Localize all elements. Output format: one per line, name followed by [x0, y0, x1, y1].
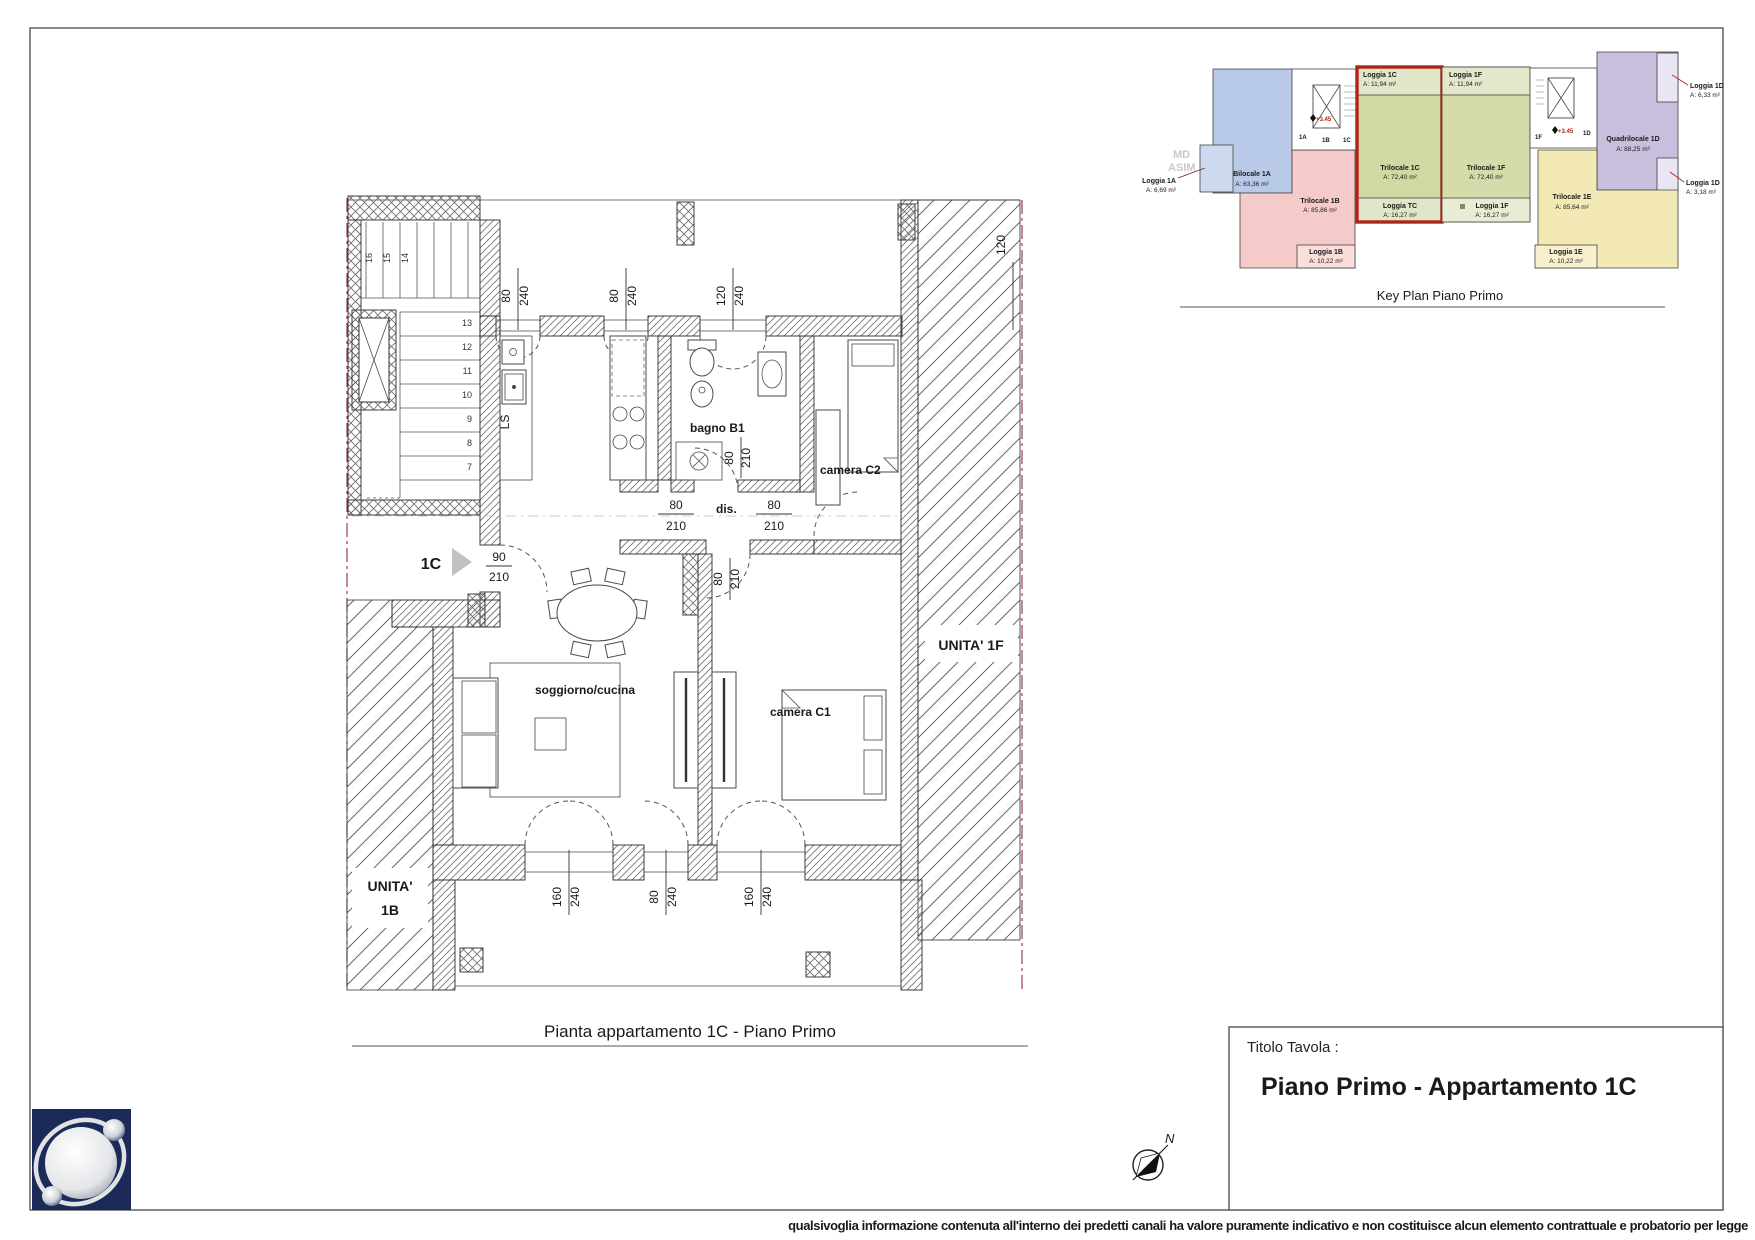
- svg-text:A: 85,86 m²: A: 85,86 m²: [1303, 207, 1337, 214]
- camera-c2: camera C2: [816, 340, 898, 505]
- dim-top-2: 80 240: [607, 268, 639, 330]
- unit-1b-zone: [347, 600, 433, 990]
- room-label-camera-c1: camera C1: [770, 705, 831, 719]
- dim-bottom-2: 80 240: [647, 850, 679, 915]
- loggia-1f-bot-area: A: 16,27 m²: [1475, 212, 1509, 219]
- core-label-1f: 1F: [1535, 135, 1542, 141]
- core-label-1a: 1A: [1299, 135, 1307, 141]
- company-logo: [19, 1103, 140, 1221]
- dim-bottom-1: 160 240: [550, 850, 582, 915]
- svg-text:A: 88,25 m²: A: 88,25 m²: [1616, 146, 1650, 153]
- room-label-camera-c2: camera C2: [820, 463, 881, 477]
- loggia-1f-top-name: Loggia 1F: [1449, 72, 1483, 79]
- svg-text:80: 80: [711, 572, 725, 586]
- drawing-sheet: 16 15 14 13 12 11 10 9 8 7: [0, 0, 1755, 1240]
- svg-text:240: 240: [760, 887, 774, 907]
- svg-text:Quadrilocale 1D: Quadrilocale 1D: [1606, 136, 1659, 143]
- stair-number-9: 9: [467, 414, 472, 424]
- svg-text:240: 240: [665, 887, 679, 907]
- kitchen-appliance: [502, 340, 524, 364]
- level-mark-right: +3.45: [1558, 129, 1574, 135]
- svg-text:160: 160: [742, 887, 756, 907]
- adjacent-unit-1b-label-line1: UNITA': [367, 878, 412, 894]
- entrance-door-arc: [500, 545, 547, 592]
- key-plan-unit-1d: Quadrilocale 1D A: 88,25 m² Loggia 1D A:…: [1597, 52, 1724, 196]
- svg-text:A: 63,36 m²: A: 63,36 m²: [1235, 181, 1269, 188]
- room-label-soggiorno: soggiorno/cucina: [535, 683, 635, 697]
- north-label: N: [1165, 1131, 1175, 1146]
- loggia-1d-side-area: A: 3,18 m²: [1686, 189, 1717, 196]
- title-block-label: Titolo Tavola :: [1247, 1039, 1339, 1056]
- svg-text:Trilocale 1F: Trilocale 1F: [1467, 165, 1506, 172]
- corridor: dis. 80 210 80 210 80 210 80 210: [658, 437, 792, 600]
- dim-entrance: 90 210: [486, 550, 512, 584]
- loggia-1f-top-area: A: 11,94 m²: [1449, 81, 1483, 88]
- title-block: Titolo Tavola : Piano Primo - Appartamen…: [1229, 1027, 1723, 1210]
- svg-text:240: 240: [517, 286, 531, 306]
- coffee-table: [535, 718, 566, 750]
- svg-text:A: 72,40 m²: A: 72,40 m²: [1383, 174, 1417, 181]
- unit-1b-label-box: [352, 868, 428, 928]
- main-plan-caption: Pianta appartamento 1C - Piano Primo: [544, 1022, 836, 1041]
- loggia-1b-area: A: 10,22 m²: [1309, 258, 1343, 265]
- upper-pier: [677, 202, 694, 245]
- vestibule-pier: [468, 594, 485, 627]
- watermark-line1: MD: [1173, 149, 1190, 161]
- svg-text:80: 80: [767, 498, 781, 512]
- entrance-arrow: [452, 548, 472, 576]
- svg-text:Bilocale 1A: Bilocale 1A: [1233, 171, 1271, 178]
- washbasin: [758, 352, 786, 396]
- toilet: [688, 340, 716, 376]
- svg-text:80: 80: [607, 289, 621, 303]
- loggia-tc-name: Loggia TC: [1383, 203, 1417, 210]
- stair-upper-flight: [361, 222, 480, 298]
- svg-text:Trilocale 1C: Trilocale 1C: [1380, 165, 1419, 172]
- loggia-column-left: [460, 948, 483, 972]
- room-label-dis: dis.: [716, 502, 737, 516]
- loggia-1a-name: Loggia 1A: [1142, 178, 1176, 185]
- core-label-1b: 1B: [1322, 138, 1330, 144]
- svg-text:210: 210: [764, 519, 784, 533]
- dim-top-1: 80 240: [499, 268, 531, 330]
- svg-text:A: 72,40 m²: A: 72,40 m²: [1469, 174, 1503, 181]
- level-mark-left: +3.45: [1316, 117, 1332, 123]
- loggia-1c-area: A: 11,94 m²: [1363, 81, 1397, 88]
- svg-text:80: 80: [499, 289, 513, 303]
- bed-single: [848, 340, 898, 472]
- key-plan-core-right: 1F 1D +3.45: [1530, 68, 1597, 148]
- sofa: [453, 678, 498, 788]
- svg-text:120: 120: [994, 235, 1008, 255]
- svg-text:160: 160: [550, 887, 564, 907]
- stair-number-13: 13: [462, 318, 472, 328]
- dim-door-3: 80 210: [722, 437, 753, 478]
- svg-text:210: 210: [728, 569, 742, 589]
- dim-bottom-3: 160 240: [742, 850, 774, 915]
- loggia-1d-top-name: Loggia 1D: [1690, 83, 1724, 90]
- logo-small-sphere-top: [103, 1119, 125, 1141]
- dim-door-4: 80 210: [711, 558, 742, 600]
- svg-text:80: 80: [722, 451, 736, 465]
- svg-text:120: 120: [714, 286, 728, 306]
- stair-number-7: 7: [467, 462, 472, 472]
- key-plan-unit-1f: Loggia 1F A: 11,94 m² Trilocale 1F A: 72…: [1442, 67, 1530, 222]
- key-plan-caption: Key Plan Piano Primo: [1377, 288, 1503, 303]
- svg-text:210: 210: [739, 448, 753, 468]
- kitchen-sink: [502, 370, 526, 404]
- watermark-line2: ASIM: [1168, 162, 1196, 174]
- stair-number-12: 12: [462, 342, 472, 352]
- svg-text:Trilocale 1E: Trilocale 1E: [1553, 194, 1592, 201]
- svg-text:80: 80: [669, 498, 683, 512]
- unit-1f-zone: [918, 200, 1020, 940]
- stair-number-16: 16: [364, 253, 374, 263]
- main-floor-plan: 16 15 14 13 12 11 10 9 8 7: [347, 196, 1028, 1046]
- stair-number-11: 11: [463, 366, 472, 376]
- loggia-tc-area: A: 16,27 m²: [1383, 212, 1417, 219]
- bidet: [691, 381, 713, 407]
- key-plan-unit-1c: Loggia 1C A: 11,94 m² Trilocale 1C A: 72…: [1357, 67, 1442, 222]
- svg-text:A: 85,64 m²: A: 85,64 m²: [1555, 204, 1589, 211]
- desk: [816, 410, 840, 505]
- entrance-label: 1C: [421, 556, 442, 573]
- loggia-1e-name: Loggia 1E: [1549, 249, 1583, 256]
- stair-number-15: 15: [382, 253, 392, 263]
- key-plan: MD ASIM Bilocale 1A A: 63,36 m² Loggia 1…: [1142, 52, 1724, 307]
- key-plan-core-left: 1A 1B 1C +3.45: [1292, 69, 1357, 150]
- dim-door-2: 80 210: [756, 498, 792, 533]
- loggia-1d-top-area: A: 6,33 m²: [1690, 92, 1721, 99]
- loggia-1a-area: A: 6,69 m²: [1146, 187, 1177, 194]
- stair-number-14: 14: [400, 253, 410, 263]
- shower: [676, 442, 722, 480]
- svg-text:210: 210: [666, 519, 686, 533]
- svg-text:240: 240: [568, 887, 582, 907]
- loggia-1b-name: Loggia 1B: [1309, 249, 1343, 256]
- dim-top-3: 120 240: [714, 268, 746, 330]
- adjacent-unit-1b-label-line2: 1B: [381, 902, 399, 918]
- north-compass: N: [1133, 1131, 1175, 1180]
- dining-table: [548, 568, 647, 657]
- dim-door-1: 80 210: [658, 498, 694, 533]
- title-block-title: Piano Primo - Appartamento 1C: [1261, 1073, 1637, 1101]
- stair-number-10: 10: [462, 390, 472, 400]
- core-label-1d: 1D: [1583, 131, 1591, 137]
- sink-label: LS: [498, 415, 512, 430]
- camera-c1: camera C1: [770, 690, 886, 800]
- logo-small-sphere-bottom: [42, 1186, 62, 1206]
- stair-core: 16 15 14 13 12 11 10 9 8 7: [348, 196, 480, 515]
- elevator: [352, 310, 396, 410]
- loggia-1c-name: Loggia 1C: [1363, 72, 1397, 79]
- loggia-1d-side-name: Loggia 1D: [1686, 180, 1720, 187]
- party-wall-right: [901, 200, 918, 880]
- bottom-wall: [433, 801, 901, 880]
- svg-text:80: 80: [647, 890, 661, 904]
- svg-text:240: 240: [625, 286, 639, 306]
- svg-text:240: 240: [732, 286, 746, 306]
- kitchen: LS: [498, 336, 646, 480]
- svg-text:210: 210: [489, 570, 509, 584]
- svg-text:90: 90: [492, 550, 506, 564]
- core-label-1c: 1C: [1343, 138, 1351, 144]
- stove: [610, 336, 646, 480]
- adjacent-unit-1f-label: UNITA' 1F: [938, 637, 1004, 653]
- key-plan-unit-1a: Bilocale 1A A: 63,36 m² Loggia 1A A: 6,6…: [1142, 69, 1292, 194]
- loggia-column-right: [806, 952, 830, 977]
- room-label-bagno: bagno B1: [690, 421, 745, 435]
- loggia-1e-area: A: 10,22 m²: [1549, 258, 1583, 265]
- footer-disclaimer: qualsivoglia informazione contenuta all'…: [788, 1218, 1748, 1233]
- svg-text:Trilocale 1B: Trilocale 1B: [1300, 198, 1339, 205]
- stair-number-8: 8: [467, 438, 472, 448]
- loggia-1f-bot-name: Loggia 1F: [1475, 203, 1509, 210]
